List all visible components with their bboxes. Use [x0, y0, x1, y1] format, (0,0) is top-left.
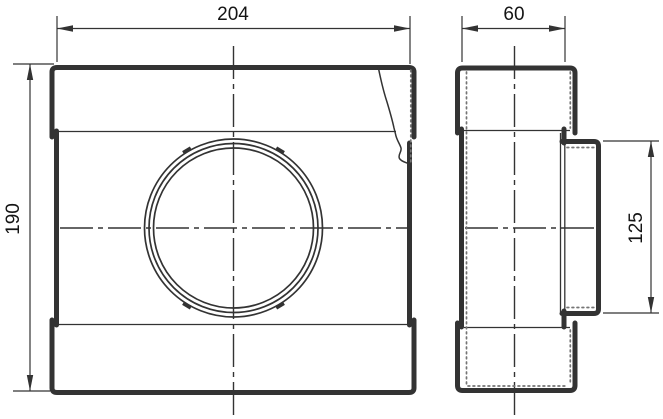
- break-out-line: [378, 66, 410, 164]
- arrowhead-bottom: [27, 375, 33, 391]
- arrowhead-top: [648, 141, 654, 157]
- technical-drawing-page: 204 60 190 125: [0, 0, 663, 419]
- dim-branch-label: 125: [626, 212, 647, 244]
- drawing-canvas: 204 60 190 125: [0, 0, 663, 419]
- arrowhead-right: [394, 25, 410, 31]
- dim-depth-label: 60: [503, 4, 524, 25]
- arrowhead-left: [57, 25, 73, 31]
- dim-width-label: 204: [217, 4, 249, 25]
- side-bottom-flange-outline: [458, 323, 576, 391]
- dimension-branch: 125: [603, 141, 659, 313]
- arrowhead-top: [27, 64, 33, 80]
- arrowhead-right: [549, 25, 565, 31]
- arrowhead-left: [462, 25, 478, 31]
- side-top-flange-outline: [458, 68, 576, 133]
- dim-height-label: 190: [3, 203, 24, 235]
- front-view: [52, 46, 414, 417]
- dimension-height: 190: [3, 64, 54, 391]
- side-view: [458, 46, 599, 417]
- dimension-depth: 60: [462, 4, 565, 62]
- arrowhead-bottom: [648, 297, 654, 313]
